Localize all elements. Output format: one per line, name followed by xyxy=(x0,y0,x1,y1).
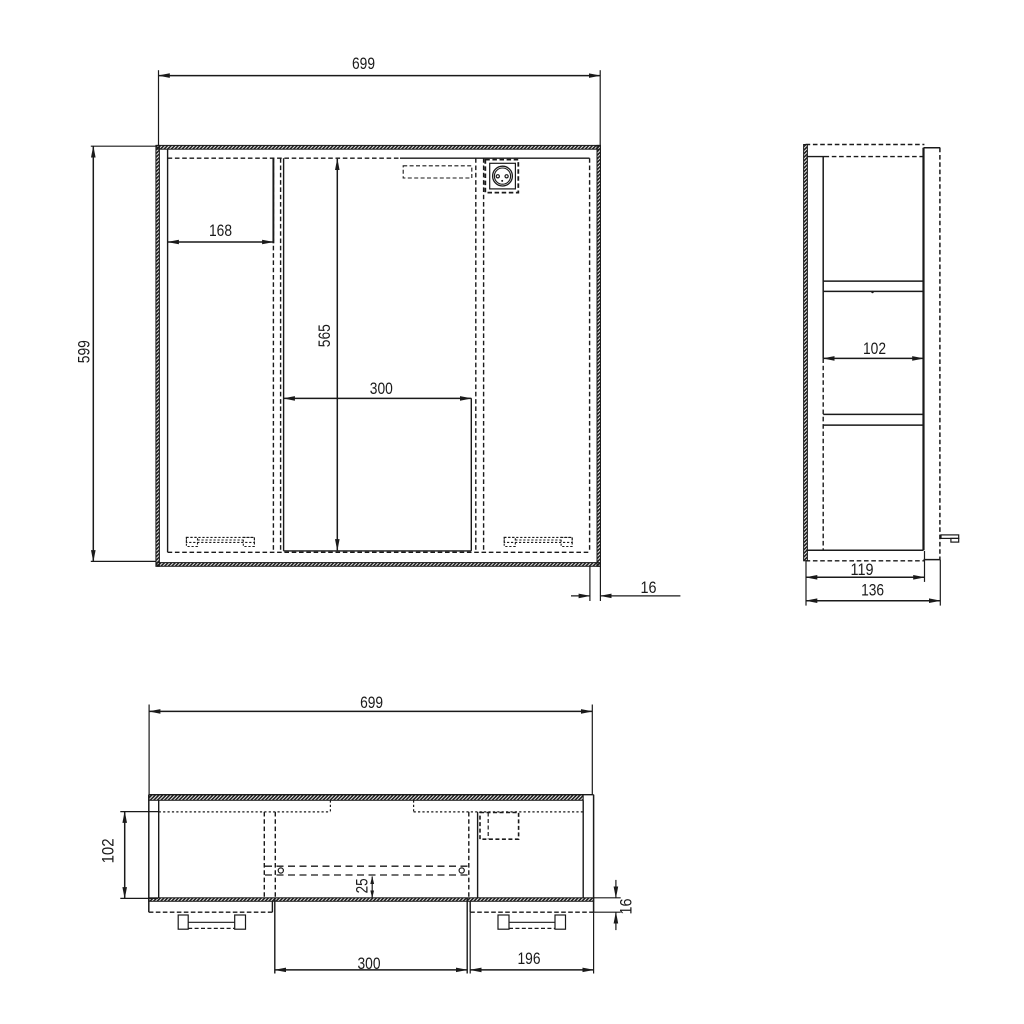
svg-text:699: 699 xyxy=(360,694,383,712)
svg-text:599: 599 xyxy=(76,340,94,363)
svg-text:25: 25 xyxy=(353,878,371,893)
svg-text:102: 102 xyxy=(100,838,118,863)
svg-text:168: 168 xyxy=(209,222,232,240)
svg-text:102: 102 xyxy=(863,340,886,358)
svg-text:565: 565 xyxy=(316,324,334,347)
svg-text:196: 196 xyxy=(518,950,541,968)
svg-text:300: 300 xyxy=(370,380,393,398)
svg-text:16: 16 xyxy=(617,899,635,915)
svg-text:136: 136 xyxy=(861,581,884,599)
svg-text:300: 300 xyxy=(358,955,381,973)
svg-text:119: 119 xyxy=(851,561,874,579)
svg-text:699: 699 xyxy=(352,55,375,73)
svg-text:16: 16 xyxy=(641,579,657,597)
